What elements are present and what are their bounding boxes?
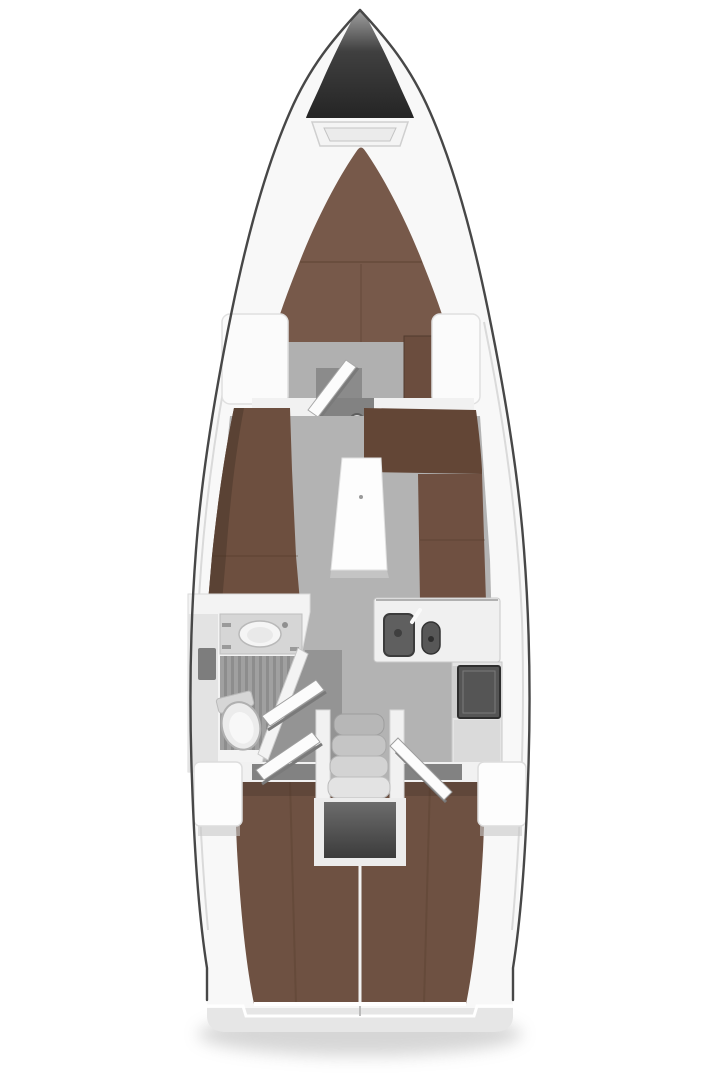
locker-starboard — [432, 314, 480, 404]
forecabin-wardrobe — [404, 336, 434, 402]
anchor-hatch-inner — [324, 128, 396, 141]
step-3 — [330, 756, 388, 777]
step-2 — [332, 735, 386, 756]
step-4 — [328, 777, 390, 798]
locker-port — [222, 314, 288, 404]
settee-starboard — [418, 474, 486, 602]
galley-sink-small-drain — [428, 636, 434, 642]
table-shadow — [330, 570, 389, 578]
cockpit-block-starboard-shadow — [480, 826, 522, 836]
galley-stove — [458, 666, 500, 718]
engine-box — [324, 802, 396, 858]
head-sink-bowl — [247, 627, 273, 643]
floorplan-svg — [0, 0, 720, 1080]
cockpit-block-starboard — [478, 762, 526, 826]
galley-fridge — [454, 720, 500, 766]
cockpit-block-port-shadow — [198, 826, 240, 836]
galley-sink-drain — [394, 629, 402, 637]
step-1 — [334, 714, 384, 735]
vanity-item-2 — [222, 645, 231, 649]
head-faucet — [282, 622, 288, 628]
table-fitting — [359, 495, 363, 499]
cockpit-block-port — [194, 762, 242, 826]
vanity-item-1 — [222, 623, 231, 627]
head-wall-cabinet — [198, 648, 216, 680]
boat-floorplan-canvas — [0, 0, 720, 1080]
